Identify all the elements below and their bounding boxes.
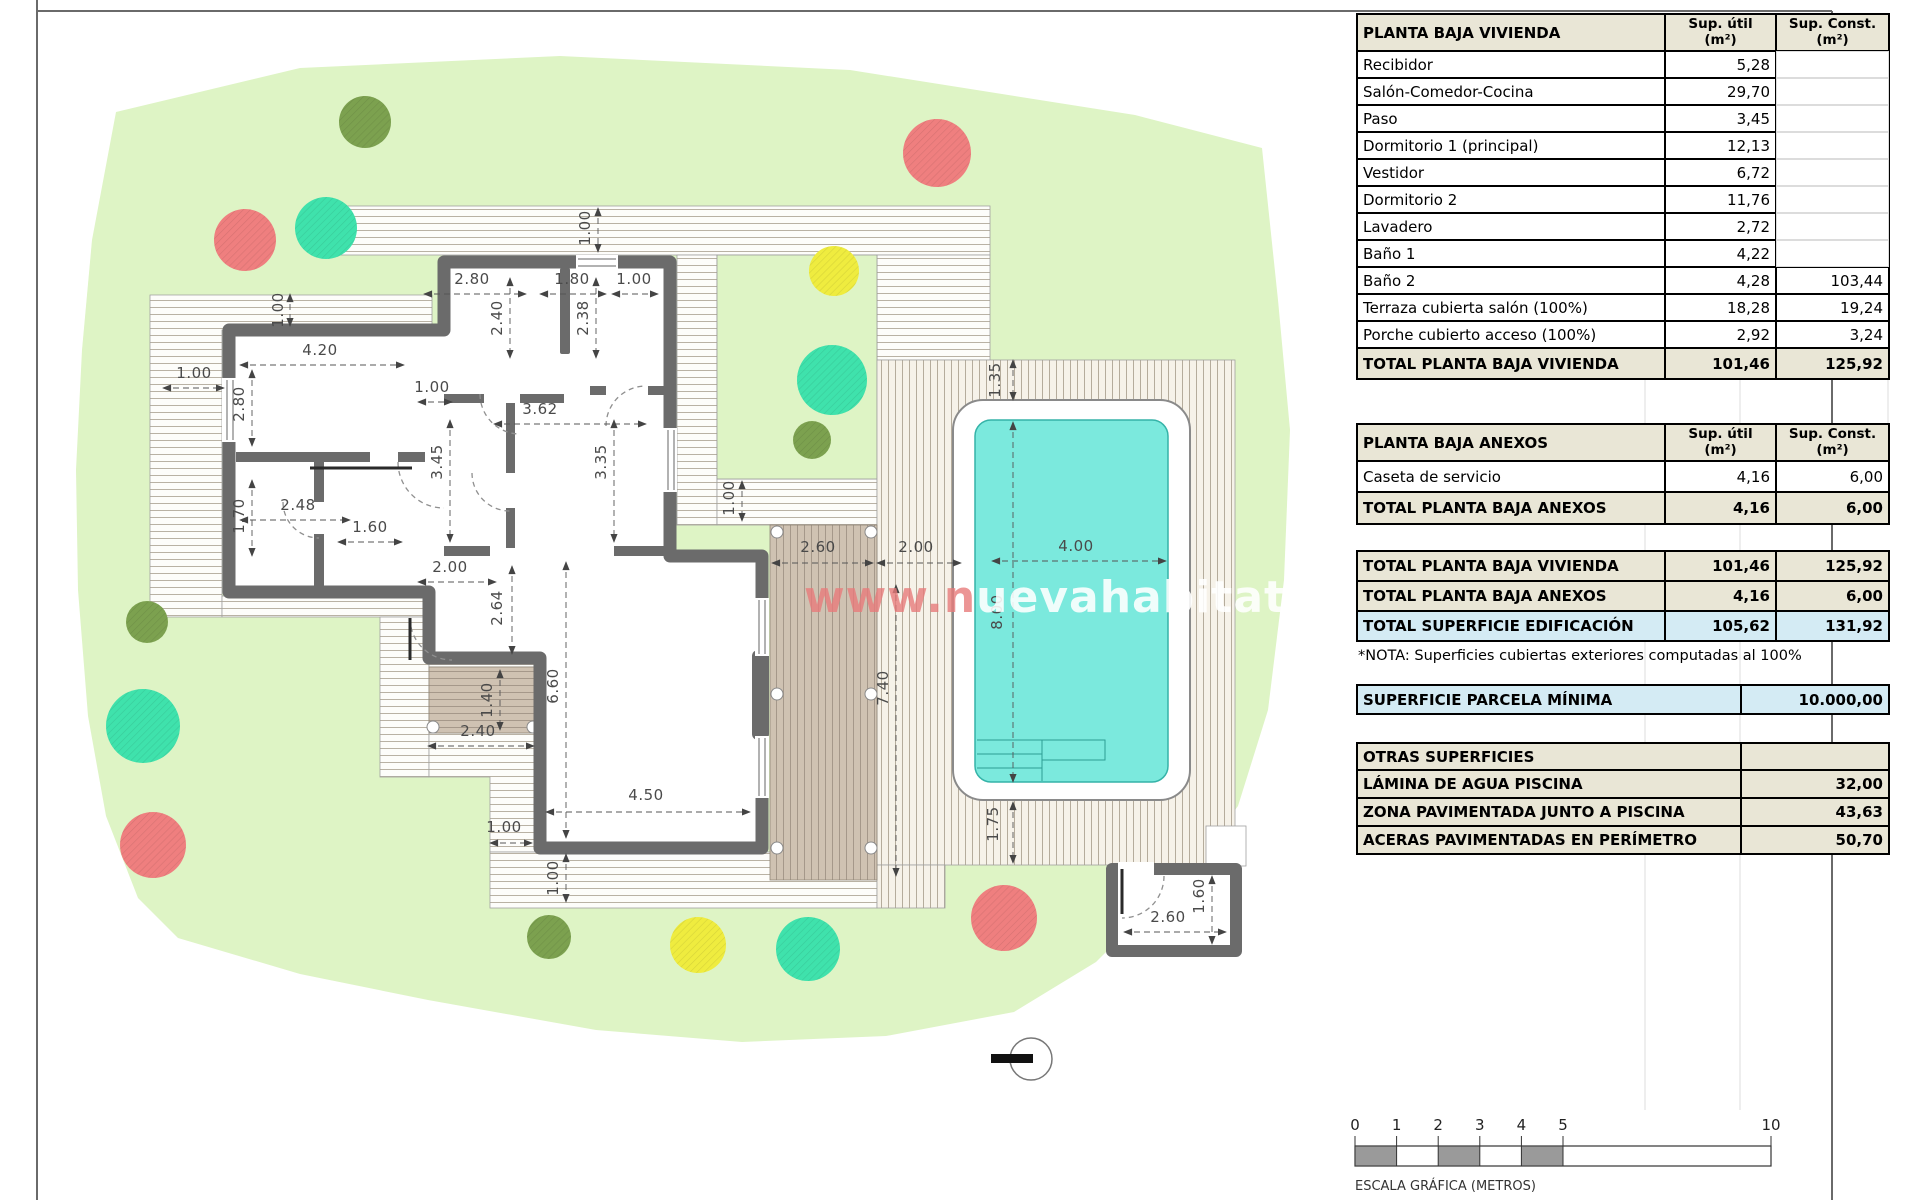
scale-bar-tick-label: 10	[1761, 1116, 1780, 1134]
parcela-label: SUPERFICIE PARCELA MÍNIMA	[1357, 685, 1741, 714]
resumen-row: TOTAL PLANTA BAJA ANEXOS4,166,00	[1357, 581, 1889, 611]
otras-label: ACERAS PAVIMENTADAS EN PERÍMETRO	[1357, 826, 1741, 854]
value-sup-util: 2,72	[1665, 213, 1776, 240]
table-row: Recibidor5,28	[1357, 51, 1889, 78]
value-sup-const	[1776, 240, 1889, 267]
column-header-sup-const: Sup. Const. (m²)	[1776, 424, 1889, 461]
nota-text: *NOTA: Superficies cubiertas exteriores …	[1358, 648, 1888, 664]
resumen-sup-const: 6,00	[1776, 581, 1889, 611]
dimension-label: 4.50	[628, 786, 663, 804]
table-row: Dormitorio 211,76	[1357, 186, 1889, 213]
otras-row: ACERAS PAVIMENTADAS EN PERÍMETRO50,70	[1357, 826, 1889, 854]
row-label: Porche cubierto acceso (100%)	[1357, 321, 1665, 348]
dimension-label: 1.00	[544, 860, 562, 895]
value-sup-util: 2,92	[1665, 321, 1776, 348]
dimension-label: 1.00	[576, 210, 594, 245]
otras-value: 50,70	[1741, 826, 1889, 854]
value-sup-util: 12,13	[1665, 132, 1776, 159]
scale-bar-tick-label: 4	[1517, 1116, 1527, 1134]
value-sup-util: 3,45	[1665, 105, 1776, 132]
value-sup-const	[1776, 78, 1889, 105]
row-label: Baño 2	[1357, 267, 1665, 294]
table-row: Paso3,45	[1357, 105, 1889, 132]
parcela-value: 10.000,00	[1741, 685, 1889, 714]
otras-label: LÁMINA DE AGUA PISCINA	[1357, 770, 1741, 798]
dimension-label: 2.40	[488, 300, 506, 335]
dimension-label: 2.80	[454, 270, 489, 288]
total-sup-const: 125,92	[1776, 348, 1889, 379]
scale-bar-tick-label: 1	[1392, 1116, 1402, 1134]
table-header-row: PLANTA BAJA ANEXOSSup. útil (m²)Sup. Con…	[1357, 424, 1889, 461]
dimension-label: 2.64	[488, 590, 506, 625]
table-header-row: PLANTA BAJA VIVIENDASup. útil (m²)Sup. C…	[1357, 14, 1889, 51]
dimension-label: 2.60	[1150, 908, 1185, 926]
dimension-label: 2.00	[432, 558, 467, 576]
row-label: Vestidor	[1357, 159, 1665, 186]
dimension-label: 3.45	[428, 444, 446, 479]
dimension-label: 1.00	[176, 364, 211, 382]
dimension-label: 1.80	[554, 270, 589, 288]
dimension-label: 1.00	[269, 292, 287, 327]
value-sup-util: 4,28	[1665, 267, 1776, 294]
value-sup-const	[1776, 51, 1889, 78]
scale-bar-tick-label: 2	[1433, 1116, 1443, 1134]
total-sup-const: 6,00	[1776, 492, 1889, 524]
value-sup-util: 29,70	[1665, 78, 1776, 105]
drawing-sheet: 1.002.801.801.002.402.384.201.001.002.80…	[0, 0, 1920, 1200]
dimension-label: 1.00	[720, 480, 738, 515]
scale-bar-tick-label: 5	[1558, 1116, 1568, 1134]
row-label: Terraza cubierta salón (100%)	[1357, 294, 1665, 321]
table-superficie-parcela: SUPERFICIE PARCELA MÍNIMA10.000,00	[1356, 684, 1890, 715]
dimension-label: 8.00	[988, 594, 1006, 629]
scale-bar-segment	[1438, 1146, 1480, 1166]
dimension-label: 4.00	[1058, 537, 1093, 555]
table-row: Baño 14,22	[1357, 240, 1889, 267]
scale-bar-segment	[1521, 1146, 1563, 1166]
otras-title: OTRAS SUPERFICIES	[1357, 743, 1741, 770]
value-sup-const	[1776, 186, 1889, 213]
value-sup-const	[1776, 132, 1889, 159]
dimension-label: 7.40	[874, 670, 892, 705]
dimension-label: 6.60	[544, 668, 562, 703]
column-header-sup-util: Sup. útil (m²)	[1665, 424, 1776, 461]
value-sup-const: 103,44	[1776, 267, 1889, 294]
otras-row: LÁMINA DE AGUA PISCINA32,00	[1357, 770, 1889, 798]
resumen-sup-const: 125,92	[1776, 551, 1889, 581]
value-sup-util: 4,16	[1665, 461, 1776, 492]
resumen-label: TOTAL SUPERFICIE EDIFICACIÓN	[1357, 611, 1665, 641]
row-label: Lavadero	[1357, 213, 1665, 240]
row-label: Recibidor	[1357, 51, 1665, 78]
otras-value: 32,00	[1741, 770, 1889, 798]
scale-bar-tick-label: 3	[1475, 1116, 1485, 1134]
dimension-label: 2.60	[800, 538, 835, 556]
resumen-sup-const: 131,92	[1776, 611, 1889, 641]
table-row: Porche cubierto acceso (100%)2,923,24	[1357, 321, 1889, 348]
total-sup-util: 101,46	[1665, 348, 1776, 379]
resumen-row: TOTAL PLANTA BAJA VIVIENDA101,46125,92	[1357, 551, 1889, 581]
column-header-sup-const: Sup. Const. (m²)	[1776, 14, 1889, 51]
graphic-scale-bar: 01234510	[1350, 1116, 1780, 1166]
table-row: Lavadero2,72	[1357, 213, 1889, 240]
resumen-label: TOTAL PLANTA BAJA ANEXOS	[1357, 581, 1665, 611]
dimension-label: 1.60	[352, 518, 387, 536]
resumen-sup-util: 101,46	[1665, 551, 1776, 581]
value-sup-util: 5,28	[1665, 51, 1776, 78]
table-otras-superficies: OTRAS SUPERFICIESLÁMINA DE AGUA PISCINA3…	[1356, 742, 1890, 855]
dimension-label: 1.35	[986, 362, 1004, 397]
table-row: Baño 24,28103,44	[1357, 267, 1889, 294]
dimension-label: 1.00	[616, 270, 651, 288]
row-label: Salón-Comedor-Cocina	[1357, 78, 1665, 105]
dimension-label: 1.00	[486, 818, 521, 836]
dimension-label: 2.38	[574, 300, 592, 335]
row-label: Caseta de servicio	[1357, 461, 1665, 492]
value-sup-const: 3,24	[1776, 321, 1889, 348]
dimension-label: 2.48	[280, 496, 315, 514]
table-row: Terraza cubierta salón (100%)18,2819,24	[1357, 294, 1889, 321]
table-row: Dormitorio 1 (principal)12,13	[1357, 132, 1889, 159]
value-sup-const	[1776, 105, 1889, 132]
dimension-label: 1.40	[478, 682, 496, 717]
table-row: Vestidor6,72	[1357, 159, 1889, 186]
column-header-sup-util: Sup. útil (m²)	[1665, 14, 1776, 51]
dimension-label: 3.35	[592, 444, 610, 479]
value-sup-const: 19,24	[1776, 294, 1889, 321]
dimension-label: 3.62	[522, 400, 557, 418]
value-sup-util: 4,22	[1665, 240, 1776, 267]
table-resumen-totales: TOTAL PLANTA BAJA VIVIENDA101,46125,92TO…	[1356, 550, 1890, 642]
value-sup-const: 6,00	[1776, 461, 1889, 492]
row-label: Baño 1	[1357, 240, 1665, 267]
row-label: Paso	[1357, 105, 1665, 132]
table-row: Caseta de servicio4,166,00	[1357, 461, 1889, 492]
total-label: TOTAL PLANTA BAJA ANEXOS	[1357, 492, 1665, 524]
dimension-label: 1.00	[414, 378, 449, 396]
scale-bar-segment	[1355, 1146, 1397, 1166]
table-total-row: TOTAL PLANTA BAJA VIVIENDA101,46125,92	[1357, 348, 1889, 379]
table-planta-baja-vivienda: PLANTA BAJA VIVIENDASup. útil (m²)Sup. C…	[1356, 13, 1890, 380]
table-title: PLANTA BAJA ANEXOS	[1357, 424, 1665, 461]
otras-value: 43,63	[1741, 798, 1889, 826]
dimension-label: 2.40	[460, 722, 495, 740]
value-sup-const	[1776, 159, 1889, 186]
survey-marker-symbol	[991, 1038, 1052, 1080]
value-sup-util: 11,76	[1665, 186, 1776, 213]
otras-label: ZONA PAVIMENTADA JUNTO A PISCINA	[1357, 798, 1741, 826]
value-sup-util: 6,72	[1665, 159, 1776, 186]
resumen-label: TOTAL PLANTA BAJA VIVIENDA	[1357, 551, 1665, 581]
dimension-label: 4.20	[302, 341, 337, 359]
dimension-label: 1.75	[984, 806, 1002, 841]
table-total-row: TOTAL PLANTA BAJA ANEXOS4,166,00	[1357, 492, 1889, 524]
row-label: Dormitorio 2	[1357, 186, 1665, 213]
covered-terrace	[770, 525, 877, 880]
value-sup-util: 18,28	[1665, 294, 1776, 321]
dimension-label: 2.00	[898, 538, 933, 556]
dimension-label: 2.80	[230, 386, 248, 421]
table-planta-baja-anexos: PLANTA BAJA ANEXOSSup. útil (m²)Sup. Con…	[1356, 423, 1890, 525]
resumen-sup-util: 4,16	[1665, 581, 1776, 611]
value-sup-const	[1776, 213, 1889, 240]
table-title: PLANTA BAJA VIVIENDA	[1357, 14, 1665, 51]
total-label: TOTAL PLANTA BAJA VIVIENDA	[1357, 348, 1665, 379]
total-sup-util: 4,16	[1665, 492, 1776, 524]
row-label: Dormitorio 1 (principal)	[1357, 132, 1665, 159]
scale-bar-caption: ESCALA GRÁFICA (METROS)	[1355, 1179, 1536, 1194]
dimension-label: 1.70	[230, 498, 248, 533]
otras-header-row: OTRAS SUPERFICIES	[1357, 743, 1889, 770]
parcela-row: SUPERFICIE PARCELA MÍNIMA10.000,00	[1357, 685, 1889, 714]
table-row: Salón-Comedor-Cocina29,70	[1357, 78, 1889, 105]
resumen-sup-util: 105,62	[1665, 611, 1776, 641]
scale-bar-tick-label: 0	[1350, 1116, 1360, 1134]
otras-title-spacer	[1741, 743, 1889, 770]
resumen-row: TOTAL SUPERFICIE EDIFICACIÓN105,62131,92	[1357, 611, 1889, 641]
dimension-label: 1.60	[1190, 878, 1208, 913]
otras-row: ZONA PAVIMENTADA JUNTO A PISCINA43,63	[1357, 798, 1889, 826]
